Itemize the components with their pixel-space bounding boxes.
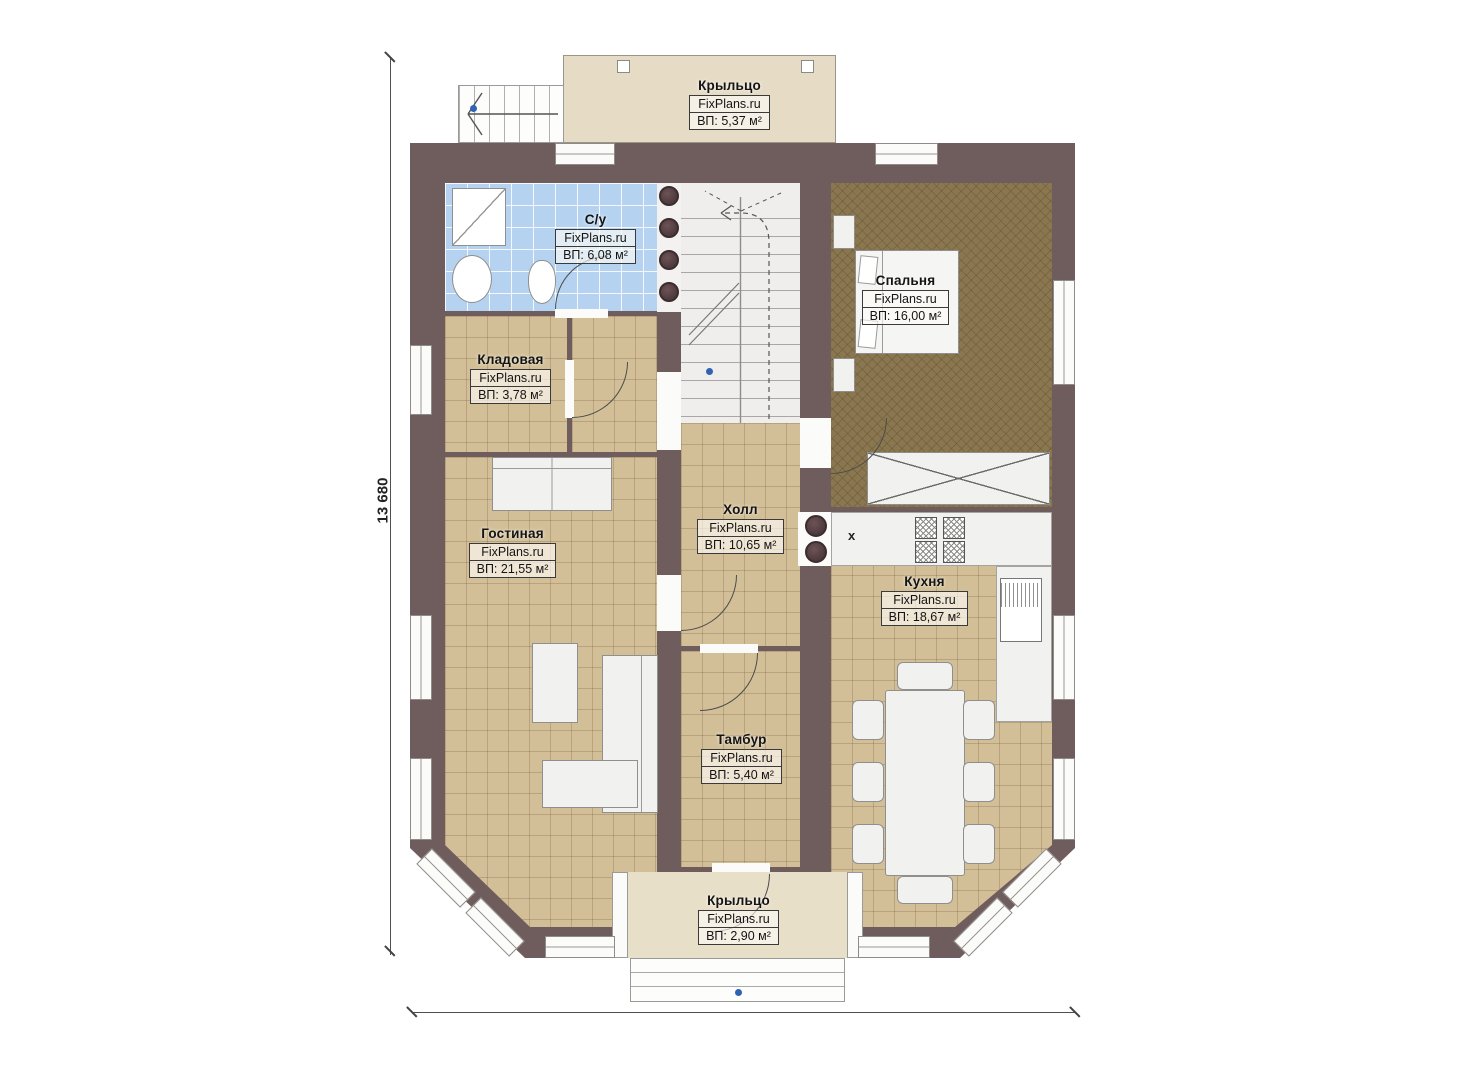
room-name: Крыльцо xyxy=(661,893,816,908)
room-label-bedroom: Спальня FixPlans.ru ВП: 16,00 м² xyxy=(828,273,983,325)
window-right-kitchen xyxy=(1053,615,1075,700)
room-area: ВП: 10,65 м² xyxy=(698,536,784,553)
room-info-box: FixPlans.ru ВП: 16,00 м² xyxy=(862,290,950,325)
corridor-opening xyxy=(657,372,681,450)
coffee-table xyxy=(532,643,578,723)
brand-watermark: FixPlans.ru xyxy=(702,750,781,766)
room-area: ВП: 5,37 м² xyxy=(690,112,769,129)
room-area: ВП: 5,40 м² xyxy=(702,766,781,783)
room-label-porch-top: Крыльцо FixPlans.ru ВП: 5,37 м² xyxy=(652,78,807,130)
sink-marker: x xyxy=(848,528,855,543)
window-right-kitchen2 xyxy=(1053,758,1075,840)
room-info-box: FixPlans.ru ВП: 5,37 м² xyxy=(689,95,770,130)
room-info-box: FixPlans.ru ВП: 21,55 м² xyxy=(469,543,557,578)
room-name: Холл xyxy=(663,502,818,517)
bathroom-door-gap xyxy=(555,309,608,318)
room-label-hall: Холл FixPlans.ru ВП: 10,65 м² xyxy=(663,502,818,554)
room-area: ВП: 21,55 м² xyxy=(470,560,556,577)
sofa xyxy=(492,457,612,511)
room-area: ВП: 16,00 м² xyxy=(863,307,949,324)
toilet-icon xyxy=(528,260,556,304)
shower-icon xyxy=(452,188,506,246)
shelf-round-item xyxy=(659,282,679,302)
window-top-right xyxy=(875,143,938,165)
window-top-left xyxy=(555,143,615,165)
brand-watermark: FixPlans.ru xyxy=(882,592,968,608)
marker-dot xyxy=(735,989,742,996)
room-info-box: FixPlans.ru ВП: 18,67 м² xyxy=(881,591,969,626)
porch-column xyxy=(801,60,814,73)
nightstand xyxy=(833,358,855,392)
brand-watermark: FixPlans.ru xyxy=(698,520,784,536)
brand-watermark: FixPlans.ru xyxy=(471,370,550,386)
stove-burner-icon xyxy=(915,517,937,539)
chair xyxy=(852,700,884,740)
marker-dot xyxy=(470,105,477,112)
chair xyxy=(897,876,953,904)
stove-burner-icon xyxy=(943,517,965,539)
exterior-stairs-arrow xyxy=(458,85,564,143)
brand-watermark: FixPlans.ru xyxy=(699,911,778,927)
window-right-bedroom xyxy=(1053,280,1075,385)
room-label-vestibule: Тамбур FixPlans.ru ВП: 5,40 м² xyxy=(664,732,819,784)
room-area: ВП: 2,90 м² xyxy=(699,927,778,944)
living-door-gap xyxy=(657,575,681,631)
stove-burner-icon xyxy=(915,541,937,563)
room-label-bathroom: С/у FixPlans.ru ВП: 6,08 м² xyxy=(518,212,673,264)
window-left-living xyxy=(410,615,432,700)
wardrobe xyxy=(867,452,1050,505)
room-area: ВП: 18,67 м² xyxy=(882,608,968,625)
corner-sofa-horizontal xyxy=(542,760,638,808)
room-name: Кладовая xyxy=(433,352,588,367)
chair xyxy=(897,662,953,690)
room-area: ВП: 6,08 м² xyxy=(556,246,635,263)
stairwell xyxy=(681,183,800,423)
vestibule-door-gap xyxy=(700,644,758,653)
chair xyxy=(963,762,995,802)
window-bottom-left xyxy=(545,936,615,958)
room-name: Крыльцо xyxy=(652,78,807,93)
room-label-storage: Кладовая FixPlans.ru ВП: 3,78 м² xyxy=(433,352,588,404)
room-label-porch-bottom: Крыльцо FixPlans.ru ВП: 2,90 м² xyxy=(661,893,816,945)
kitchen-counter-top xyxy=(831,512,1052,566)
room-info-box: FixPlans.ru ВП: 2,90 м² xyxy=(698,910,779,945)
bedroom-door-gap xyxy=(800,418,831,468)
chair xyxy=(963,824,995,864)
chair xyxy=(963,700,995,740)
shelf-round-item xyxy=(659,186,679,206)
room-label-living: Гостиная FixPlans.ru ВП: 21,55 м² xyxy=(435,526,590,578)
fridge-icon xyxy=(1000,578,1042,642)
floor-plan-canvas: 13 680 10 180 xyxy=(0,0,1474,1080)
stove-burner-icon xyxy=(943,541,965,563)
marker-dot xyxy=(706,368,713,375)
room-name: Кухня xyxy=(847,574,1002,589)
dimension-height-label: 13 680 xyxy=(375,466,392,536)
window-left-living2 xyxy=(410,758,432,840)
room-info-box: FixPlans.ru ВП: 5,40 м² xyxy=(701,749,782,784)
dimension-line-horizontal xyxy=(412,1012,1075,1013)
room-label-kitchen: Кухня FixPlans.ru ВП: 18,67 м² xyxy=(847,574,1002,626)
room-name: Спальня xyxy=(828,273,983,288)
brand-watermark: FixPlans.ru xyxy=(690,96,769,112)
chair xyxy=(852,762,884,802)
room-name: С/у xyxy=(518,212,673,227)
room-name: Тамбур xyxy=(664,732,819,747)
room-info-box: FixPlans.ru ВП: 10,65 м² xyxy=(697,519,785,554)
nightstand xyxy=(833,215,855,249)
brand-watermark: FixPlans.ru xyxy=(863,291,949,307)
room-info-box: FixPlans.ru ВП: 3,78 м² xyxy=(470,369,551,404)
room-area: ВП: 3,78 м² xyxy=(471,386,550,403)
window-left-storage xyxy=(410,345,432,415)
brand-watermark: FixPlans.ru xyxy=(556,230,635,246)
dining-table xyxy=(885,690,965,876)
chair xyxy=(852,824,884,864)
room-name: Гостиная xyxy=(435,526,590,541)
brand-watermark: FixPlans.ru xyxy=(470,544,556,560)
porch-column xyxy=(617,60,630,73)
room-info-box: FixPlans.ru ВП: 6,08 м² xyxy=(555,229,636,264)
sink-icon xyxy=(452,255,492,303)
window-bottom-right xyxy=(858,936,930,958)
